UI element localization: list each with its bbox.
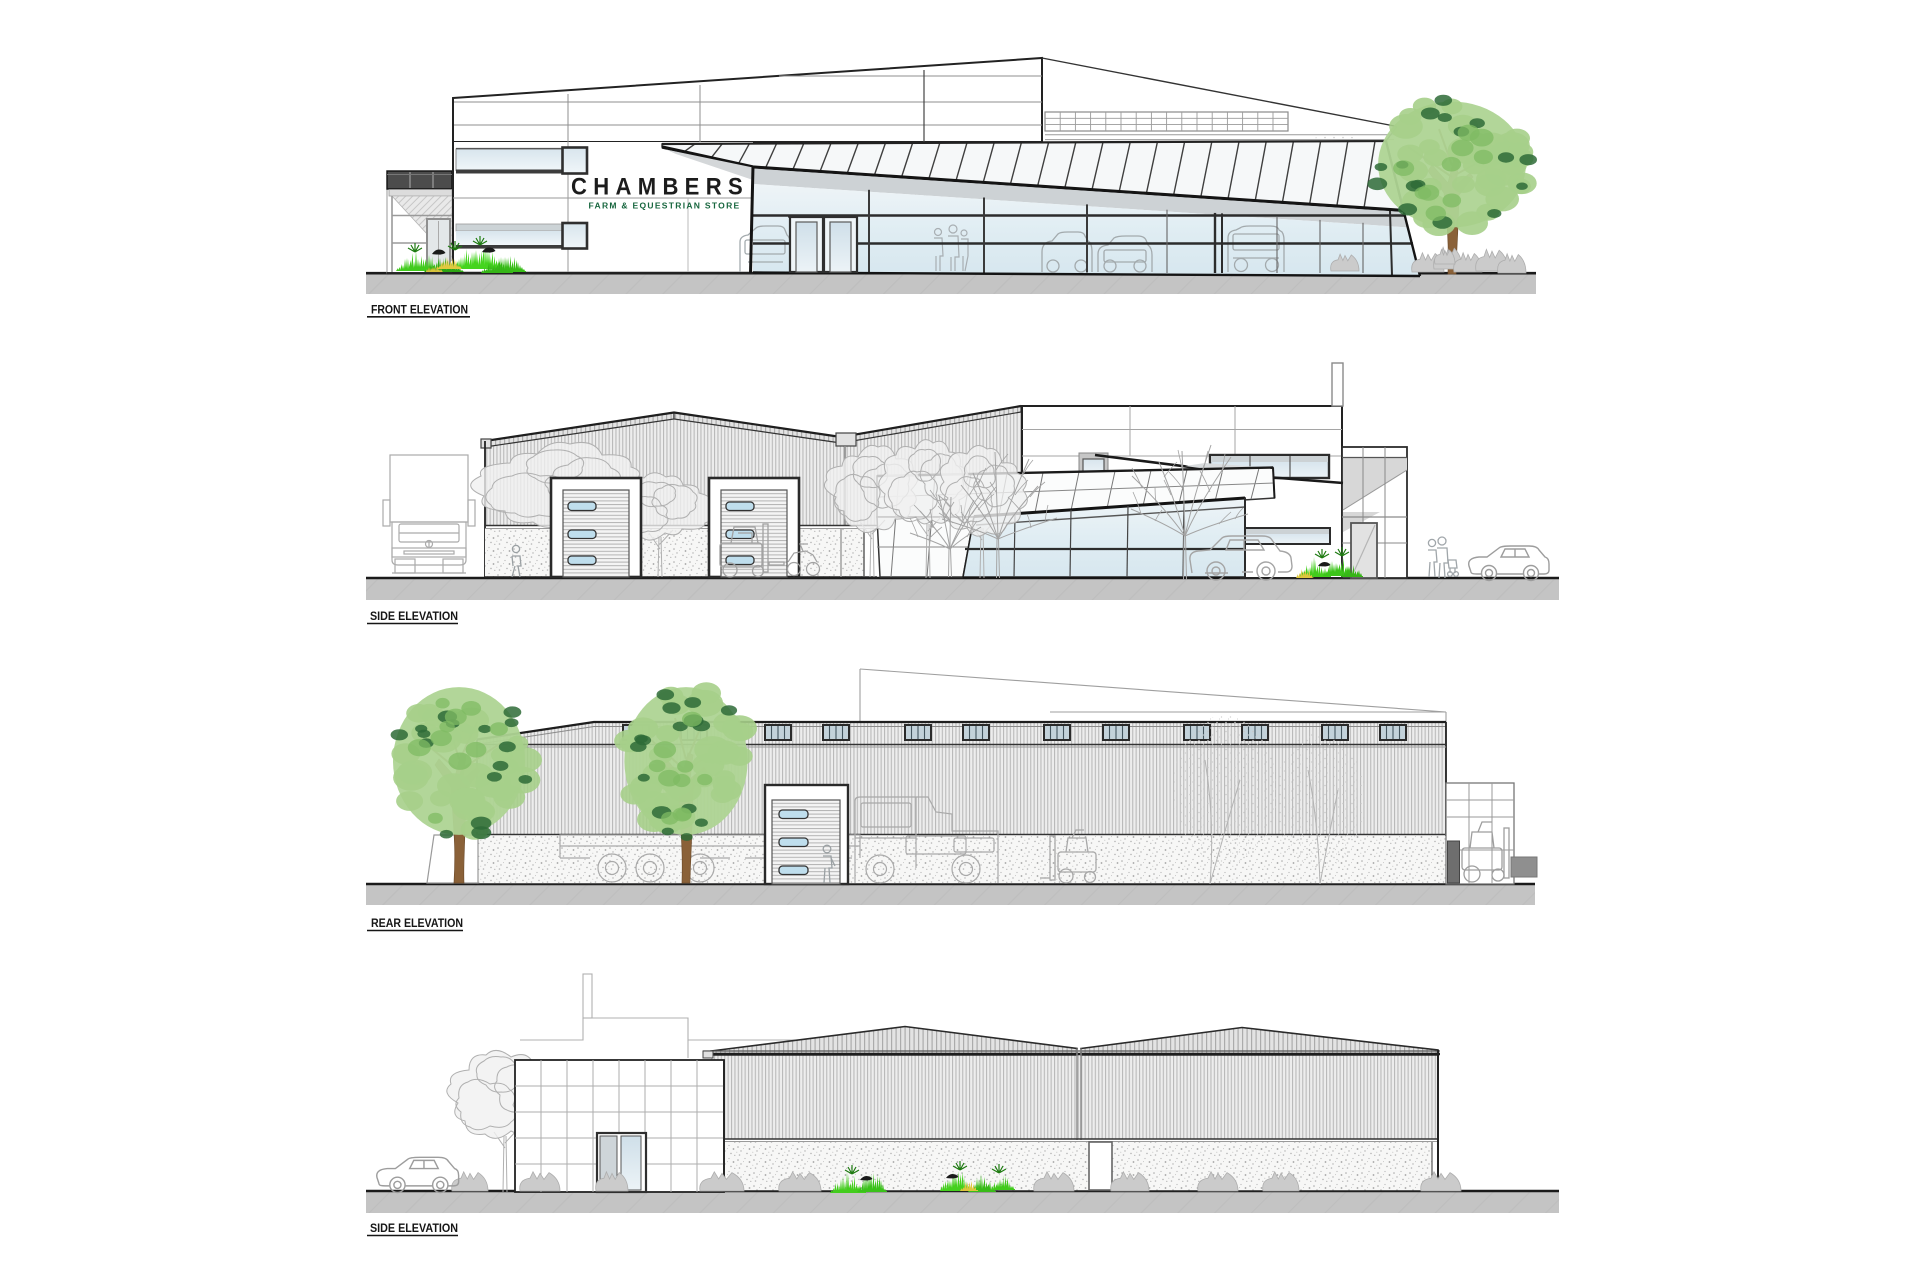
svg-text:REAR ELEVATION: REAR ELEVATION: [371, 916, 463, 930]
svg-text:FRONT ELEVATION: FRONT ELEVATION: [371, 303, 468, 317]
svg-text:CHAMBERS: CHAMBERS: [571, 174, 749, 201]
svg-text:SIDE ELEVATION: SIDE ELEVATION: [370, 609, 458, 623]
svg-text:FARM & EQUESTRIAN STORE: FARM & EQUESTRIAN STORE: [589, 201, 741, 211]
svg-text:SIDE ELEVATION: SIDE ELEVATION: [370, 1221, 458, 1235]
